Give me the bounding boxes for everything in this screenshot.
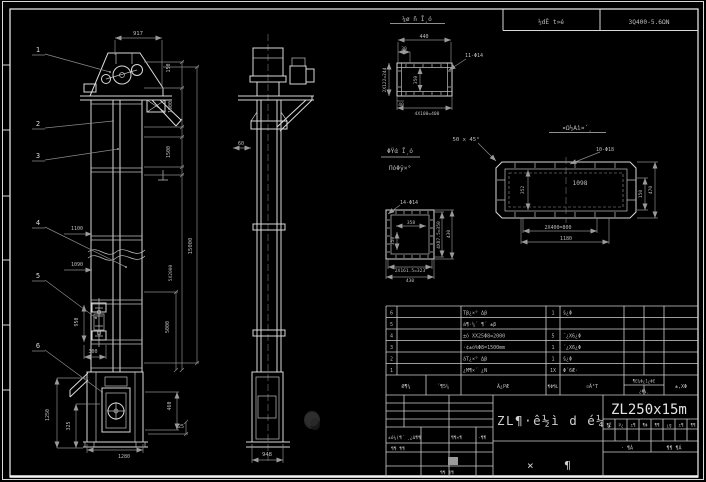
table-row: 5 á¶·¼´ ¶´ ±β xyxy=(390,321,496,328)
sheet-count-right: ¶¶ ¶Á xyxy=(666,445,681,452)
dim-mid: 5000 xyxy=(165,321,171,333)
header-qty: ¶Φ¶L xyxy=(547,384,558,390)
balloon-1: 1 xyxy=(36,46,40,54)
row-qty: 1X xyxy=(550,368,556,374)
rev-cell: ¿g xyxy=(666,423,672,428)
header-remark: ±,XΦ xyxy=(675,384,687,390)
row-no: 5 xyxy=(390,322,393,328)
rev-cell: ±¶ xyxy=(630,423,636,428)
dim-top-width: 917 xyxy=(133,31,143,37)
dim-inlet-a: 1100 xyxy=(71,226,83,232)
signature-row2: ¶¶ ¶¶ xyxy=(391,446,405,452)
cursor-artifact xyxy=(304,411,320,430)
rev-cell: ¶Φ xyxy=(642,423,648,428)
fraction-note: ΦΫά Ī¸ó ΠόΦÿ×° xyxy=(381,146,420,172)
dim-takeup-w: 300 xyxy=(88,349,97,355)
row-name: á¶·¼´ ¶´ ±β xyxy=(463,321,496,328)
dim-boot-height: 1250 xyxy=(45,409,51,421)
signature-cell: ·¶¶ xyxy=(478,435,487,441)
balloon-3: 3 xyxy=(36,152,40,160)
dim-boot-right: 460 xyxy=(167,401,173,410)
side-view: 60 948 xyxy=(233,34,314,463)
dim-side-boot-width: 948 xyxy=(262,452,273,458)
flange-a-inner: 350 xyxy=(413,76,419,85)
row-material: §¿Φ xyxy=(563,311,572,317)
duct-left: 352 xyxy=(520,186,526,195)
rev-cell: ±¶ xyxy=(678,423,684,428)
balloon-4: 4 xyxy=(36,219,40,227)
dim-inlet-b: 1090 xyxy=(71,262,83,268)
row-qty: 1 xyxy=(551,357,554,363)
duct-holes: 10-Φ18 xyxy=(596,147,614,153)
table-row: 4 ±ó XX25Φ8=2000 5 ´¿Χ6¿Φ xyxy=(390,333,581,340)
drawing-sheet: ½dÊ t»é 3Q400-5.6ΩN xyxy=(0,0,706,482)
row-material: ´¿Χ6¿Φ xyxy=(563,345,581,351)
header-material: ¤Ã³T xyxy=(586,383,598,390)
duct-bottom-b: 1180 xyxy=(560,236,572,242)
model-number: ZL250x15m xyxy=(611,402,687,418)
flange-b-right-a: 4X87.5=350 xyxy=(436,221,442,249)
flange-b-bottom-b: 430 xyxy=(406,278,415,284)
header-no: Ø¶¼ xyxy=(401,383,410,390)
signature-cell: ¸¿Δ¶¶ xyxy=(407,435,421,441)
drawing-number: 3Q400-5.6ΩN xyxy=(629,19,670,26)
dim-boot-width: 1280 xyxy=(118,454,130,460)
dim-side-upper: 60 xyxy=(238,141,244,147)
flange-b-inner-width: 358 xyxy=(407,220,416,226)
row-material: ´¿Χ6¿Φ xyxy=(563,334,581,340)
row-name: áΤ¿×° Δβ xyxy=(463,356,487,363)
duct-title: ¤Ω½Αì¤´¸ xyxy=(562,124,592,132)
title-strip: ½dÊ t»é 3Q400-5.6ΩN xyxy=(503,9,698,31)
note-line2: ΠόΦÿ×° xyxy=(389,164,411,172)
row-material: §¿Φ xyxy=(563,357,572,363)
balloon-5: 5 xyxy=(36,272,40,280)
rev-cell: ¶Ê xyxy=(606,423,612,428)
table-row: 3 ·¢±ó%Φ8=1500mm 1 ´¿Χ6¿Φ xyxy=(390,344,581,351)
drawing-subtitle: × ¶ xyxy=(527,459,583,472)
row-name: ¿Μ¶×´ ¿Ν xyxy=(463,368,487,374)
flange-a-left: 2X122=244 xyxy=(382,67,388,92)
dim-sections: 5X2000 xyxy=(168,264,174,281)
signature-row3: ¶¶ ¶¶ xyxy=(440,470,454,476)
duct-bottom-a: 2X400=800 xyxy=(544,225,571,231)
signature-cell: ¶¶×¶ xyxy=(451,435,462,441)
sheet-count-left: · ¶Á xyxy=(621,445,633,452)
header-code: ´¶5¼ xyxy=(437,384,449,390)
cad-drawing-canvas: ½dÊ t»é 3Q400-5.6ΩN xyxy=(0,0,706,482)
row-name: Τβ¿×° Δβ xyxy=(463,311,487,317)
front-view-geometry xyxy=(70,53,182,447)
dim-boot-mid: 325 xyxy=(66,421,72,430)
duct-chamfer: 50 x 45° xyxy=(453,137,480,143)
note-line1: ΦΫά Ī¸ó xyxy=(387,146,413,155)
row-qty: 1 xyxy=(551,345,554,351)
flange-a-offset: 30 xyxy=(401,46,407,52)
highlighted-cell xyxy=(448,457,458,465)
front-view-dimensions: 917 150 1900 1500 15000 5X2000 5000 1100… xyxy=(45,31,199,460)
flange-a-holes: 11-Φ14 xyxy=(465,53,483,59)
table-row: 6 Τβ¿×° Δβ 1 §¿Φ xyxy=(390,311,572,317)
row-no: 3 xyxy=(390,345,393,351)
rev-cell: Ρ¿ xyxy=(618,423,624,428)
row-qty: 5 xyxy=(551,334,554,340)
row-no: 2 xyxy=(390,357,393,363)
table-row: 2 áΤ¿×° Δβ 1 §¿Φ xyxy=(390,356,572,363)
flange-a-title: ¼ø ñ Ī¸ó xyxy=(402,14,432,23)
dim-upper: 1500 xyxy=(166,146,172,158)
balloon-6: 6 xyxy=(36,342,40,350)
dim-total-height: 15000 xyxy=(188,238,194,255)
rev-cell: ¶¶ xyxy=(690,423,696,428)
flange-a-bottom: 4X100=400 xyxy=(415,111,440,117)
title-block: ±ó¼(¶´ ¸¿Δ¶¶ ¶¶×¶ ·¶¶ ¶¶ ¶¶ ¶¶ ¶¶ ZL¶·ê½… xyxy=(386,395,698,477)
duct-length: 1098 xyxy=(573,180,588,187)
balloon-2: 2 xyxy=(36,120,40,128)
drawing-title: ZL¶·ê½ì d é¼¸ xyxy=(497,413,614,428)
flange-a-width: 440 xyxy=(419,34,428,40)
row-name: ±ó XX25Φ8=2000 xyxy=(463,333,505,340)
duct-detail: ¤Ω½Αì¤´¸ 50 x 45° 10-Φ18 1098 352 150 47… xyxy=(453,124,658,244)
front-view: 917 150 1900 1500 15000 5X2000 5000 1100… xyxy=(32,31,199,460)
dim-head-top: 150 xyxy=(166,63,172,72)
flange-detail-a: ¼ø ñ Ī¸ó 440 30 11-Φ14 2X122=244 350 40 … xyxy=(382,14,483,117)
flange-b-bottom-a: 2X161.5=323 xyxy=(395,268,426,274)
header-name: Ã¿ΡÆ xyxy=(497,383,509,390)
row-no: 4 xyxy=(390,334,393,340)
duct-right-b: 470 xyxy=(648,186,654,195)
row-qty: 1 xyxy=(551,311,554,317)
signature-cell: ±ó¼(¶´ xyxy=(388,434,405,441)
header-weight-top: ¶Ε¼Φ¿1¿ΦΕ xyxy=(633,379,656,385)
flange-b-inner-height: 350 xyxy=(390,237,396,246)
dim-base: 25 xyxy=(178,424,184,430)
doc-class-label: ½dÊ t»é xyxy=(538,17,564,26)
flange-a-edge: 40 xyxy=(398,102,404,108)
duct-right-a: 150 xyxy=(638,190,644,199)
dim-head: 1900 xyxy=(168,101,174,113)
dim-takeup-stroke: 950 xyxy=(74,317,80,326)
row-no: 6 xyxy=(390,311,393,317)
side-view-geometry xyxy=(238,48,314,447)
row-no: 1 xyxy=(390,368,393,374)
flange-b-right-b: 430 xyxy=(446,230,452,239)
flange-b-holes: 14-Φ14 xyxy=(400,200,418,206)
flange-detail-b: 14-Φ14 358 350 4X87.5=350 430 2X161.5=32… xyxy=(386,200,454,284)
row-material: Φ´6Æ· xyxy=(563,368,578,374)
rev-cell: ¶¶ xyxy=(654,423,660,428)
table-row: 1 ¿Μ¶×´ ¿Ν 1X Φ´6Æ· xyxy=(390,368,578,374)
drawing-frame xyxy=(3,2,704,480)
row-name: ·¢±ó%Φ8=1500mm xyxy=(463,344,505,351)
